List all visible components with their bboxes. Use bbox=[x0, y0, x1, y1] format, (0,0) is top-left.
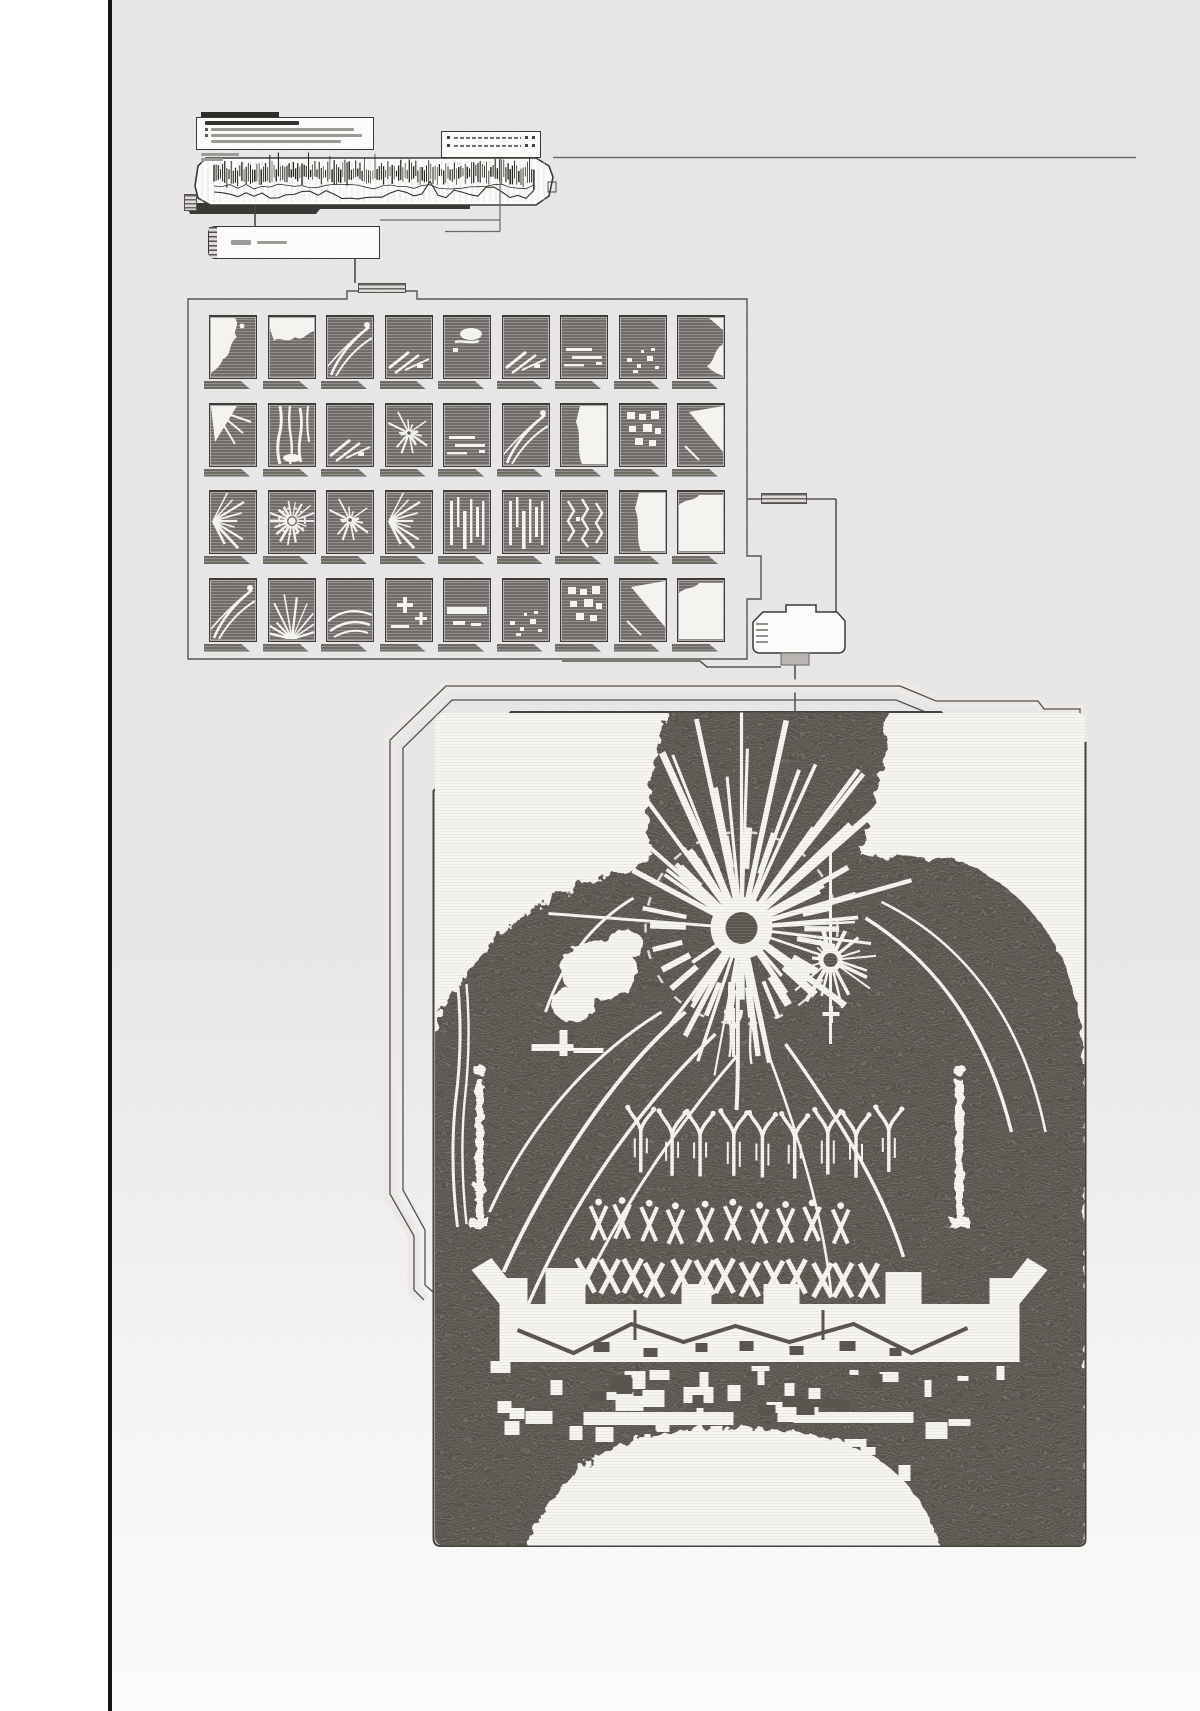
thumbnail-foot bbox=[380, 556, 426, 564]
thumbnail-foot bbox=[438, 469, 484, 477]
thumbnail-foot bbox=[321, 556, 367, 564]
dot-icon bbox=[532, 136, 535, 139]
event-thumbnail bbox=[619, 578, 667, 653]
thumbnail-foot bbox=[204, 556, 250, 564]
event-thumbnail bbox=[385, 315, 433, 390]
thumbnail-foot bbox=[614, 381, 660, 389]
event-thumbnail bbox=[443, 578, 491, 653]
bullet-icon bbox=[205, 128, 208, 131]
hatch-connector-tab bbox=[358, 283, 406, 293]
hatch-corner-block bbox=[184, 194, 197, 211]
event-thumbnail bbox=[677, 578, 725, 653]
thumbnail-halftone bbox=[326, 315, 374, 379]
thumbnail-foot bbox=[263, 469, 309, 477]
thumbnail-foot bbox=[555, 381, 601, 389]
caption-label-card bbox=[208, 226, 380, 259]
thumbnail-halftone bbox=[502, 490, 550, 554]
dot-icon bbox=[532, 144, 535, 147]
event-thumbnail bbox=[502, 315, 550, 390]
dot-icon bbox=[525, 144, 528, 147]
dot-icon bbox=[447, 136, 450, 139]
event-thumbnail bbox=[326, 315, 374, 390]
thumbnail-foot bbox=[263, 644, 309, 652]
thumbnail-foot bbox=[204, 644, 250, 652]
event-thumbnail bbox=[209, 315, 257, 390]
greeked-label bbox=[231, 240, 287, 245]
poster-page bbox=[0, 0, 1200, 1711]
thumbnail-foot bbox=[438, 644, 484, 652]
hatch-edge bbox=[209, 227, 217, 258]
diagram-vector-layer bbox=[0, 0, 1200, 1711]
thumbnail-halftone bbox=[560, 578, 608, 642]
thumbnail-foot bbox=[555, 556, 601, 564]
thumbnail-halftone bbox=[619, 403, 667, 467]
greeked-text-line bbox=[205, 134, 367, 137]
thumbnail-halftone bbox=[677, 403, 725, 467]
event-thumbnail bbox=[443, 315, 491, 390]
thumbnail-foot bbox=[321, 469, 367, 477]
thumbnail-foot bbox=[555, 644, 601, 652]
event-thumbnail bbox=[560, 315, 608, 390]
event-thumbnail bbox=[268, 403, 316, 478]
thumbnail-halftone bbox=[619, 578, 667, 642]
thumbnail-foot bbox=[263, 381, 309, 389]
thumbnail-halftone bbox=[560, 403, 608, 467]
scanline-overlay bbox=[434, 712, 1086, 1546]
thumbnail-halftone bbox=[619, 490, 667, 554]
event-thumbnail bbox=[619, 403, 667, 478]
event-thumbnail bbox=[209, 490, 257, 565]
thumbnail-foot bbox=[672, 469, 718, 477]
thumbnail-foot bbox=[614, 644, 660, 652]
bullet-icon bbox=[205, 134, 208, 137]
thumbnail-foot bbox=[438, 556, 484, 564]
thumbnail-foot bbox=[321, 644, 367, 652]
thumbnail-halftone bbox=[268, 315, 316, 379]
event-thumbnail bbox=[385, 403, 433, 478]
event-thumbnail bbox=[443, 490, 491, 565]
thumbnail-foot bbox=[380, 469, 426, 477]
event-thumbnail bbox=[326, 578, 374, 653]
thumbnail-halftone bbox=[209, 578, 257, 642]
greeked-title-line bbox=[205, 121, 299, 125]
legend-list-card bbox=[441, 131, 541, 158]
event-thumbnail bbox=[677, 315, 725, 390]
thumbnail-halftone bbox=[268, 403, 316, 467]
thumbnail-halftone bbox=[326, 490, 374, 554]
event-thumbnail bbox=[268, 315, 316, 390]
thumbnail-foot bbox=[672, 556, 718, 564]
thumbnail-foot bbox=[438, 381, 484, 389]
thumbnail-foot bbox=[497, 644, 543, 652]
event-thumbnail bbox=[326, 403, 374, 478]
event-thumbnail bbox=[268, 490, 316, 565]
event-thumbnail bbox=[619, 315, 667, 390]
event-thumbnail bbox=[502, 403, 550, 478]
thumbnail-halftone bbox=[677, 315, 725, 379]
legend-row bbox=[447, 136, 535, 139]
thumbnail-halftone bbox=[209, 490, 257, 554]
event-thumbnail bbox=[560, 403, 608, 478]
event-thumbnail bbox=[443, 403, 491, 478]
thumbnail-halftone bbox=[502, 578, 550, 642]
thumbnail-halftone bbox=[443, 490, 491, 554]
thumbnail-halftone bbox=[385, 315, 433, 379]
thumbnail-halftone bbox=[443, 578, 491, 642]
halftone-collision-artwork bbox=[424, 702, 1087, 1556]
thumbnail-halftone bbox=[443, 315, 491, 379]
event-thumbnail bbox=[502, 490, 550, 565]
thumbnail-foot bbox=[614, 556, 660, 564]
connector-tab-box bbox=[753, 605, 845, 712]
thumbnail-halftone bbox=[209, 403, 257, 467]
thumbnail-halftone bbox=[385, 578, 433, 642]
thumbnail-halftone bbox=[268, 490, 316, 554]
event-thumbnail bbox=[560, 578, 608, 653]
event-thumbnail bbox=[502, 578, 550, 653]
thumbnail-foot bbox=[380, 381, 426, 389]
event-thumbnail bbox=[385, 490, 433, 565]
info-caption bbox=[201, 153, 241, 163]
event-thumbnail bbox=[209, 403, 257, 478]
thumbnail-foot bbox=[555, 469, 601, 477]
thumbnail-halftone bbox=[268, 578, 316, 642]
thumbnail-foot bbox=[497, 381, 543, 389]
thumbnail-foot bbox=[672, 644, 718, 652]
thumbnail-halftone bbox=[326, 578, 374, 642]
dot-icon bbox=[525, 136, 528, 139]
thumbnail-foot bbox=[204, 381, 250, 389]
thumbnail-foot bbox=[497, 469, 543, 477]
thumbnail-halftone bbox=[677, 578, 725, 642]
thumbnail-halftone bbox=[560, 315, 608, 379]
dot-icon bbox=[447, 144, 450, 147]
event-thumbnail bbox=[385, 578, 433, 653]
event-thumbnail bbox=[209, 578, 257, 653]
thumbnail-foot bbox=[204, 469, 250, 477]
thumbnail-halftone bbox=[560, 490, 608, 554]
thumbnail-foot bbox=[263, 556, 309, 564]
event-thumbnail bbox=[677, 490, 725, 565]
thumbnail-halftone bbox=[677, 490, 725, 554]
thumbnail-foot bbox=[614, 469, 660, 477]
event-thumbnail bbox=[268, 578, 316, 653]
thumbnail-halftone bbox=[385, 403, 433, 467]
thumbnail-halftone bbox=[619, 315, 667, 379]
event-thumbnail bbox=[619, 490, 667, 565]
thumbnail-foot bbox=[380, 644, 426, 652]
hatch-link-block bbox=[761, 493, 807, 504]
thumbnail-halftone bbox=[502, 403, 550, 467]
thumbnail-foot bbox=[321, 381, 367, 389]
thumbnail-halftone bbox=[326, 403, 374, 467]
thumbnail-halftone bbox=[209, 315, 257, 379]
event-thumbnail bbox=[560, 490, 608, 565]
annotation-card bbox=[196, 117, 374, 150]
thumbnail-halftone bbox=[443, 403, 491, 467]
thumbnail-halftone bbox=[385, 490, 433, 554]
thumbnail-foot bbox=[497, 556, 543, 564]
thumbnail-foot bbox=[672, 381, 718, 389]
thumbnail-halftone bbox=[502, 315, 550, 379]
event-thumbnail bbox=[326, 490, 374, 565]
greeked-text-line bbox=[205, 128, 367, 131]
legend-row bbox=[447, 144, 535, 147]
event-thumbnail bbox=[677, 403, 725, 478]
greeked-text-line bbox=[205, 140, 367, 143]
